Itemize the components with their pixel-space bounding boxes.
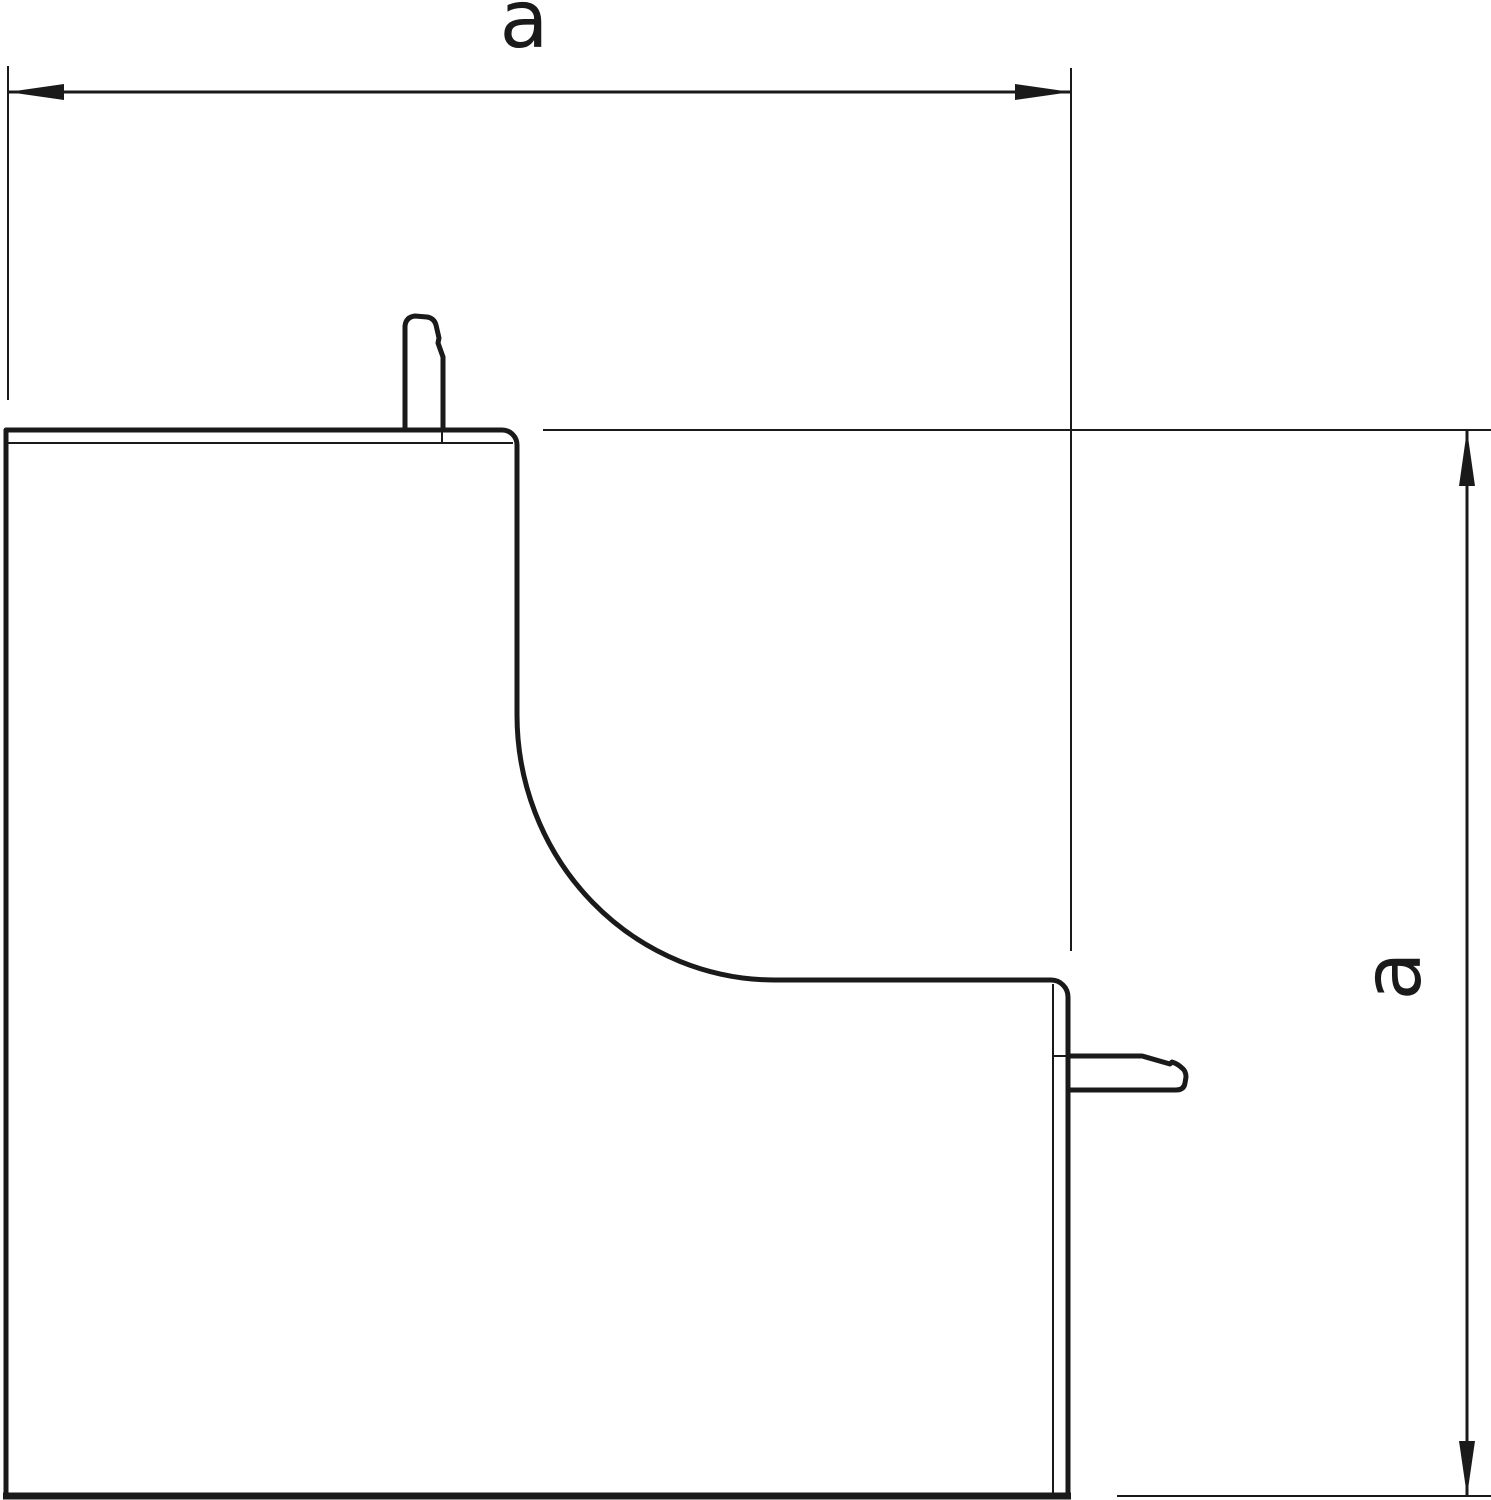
technical-drawing: a a	[0, 0, 1491, 1500]
technical-drawing-page: a a	[0, 0, 1491, 1500]
drawing-background	[0, 0, 1491, 1500]
dimension-label-top: a	[499, 0, 548, 66]
dimension-label-right: a	[1346, 951, 1439, 1000]
